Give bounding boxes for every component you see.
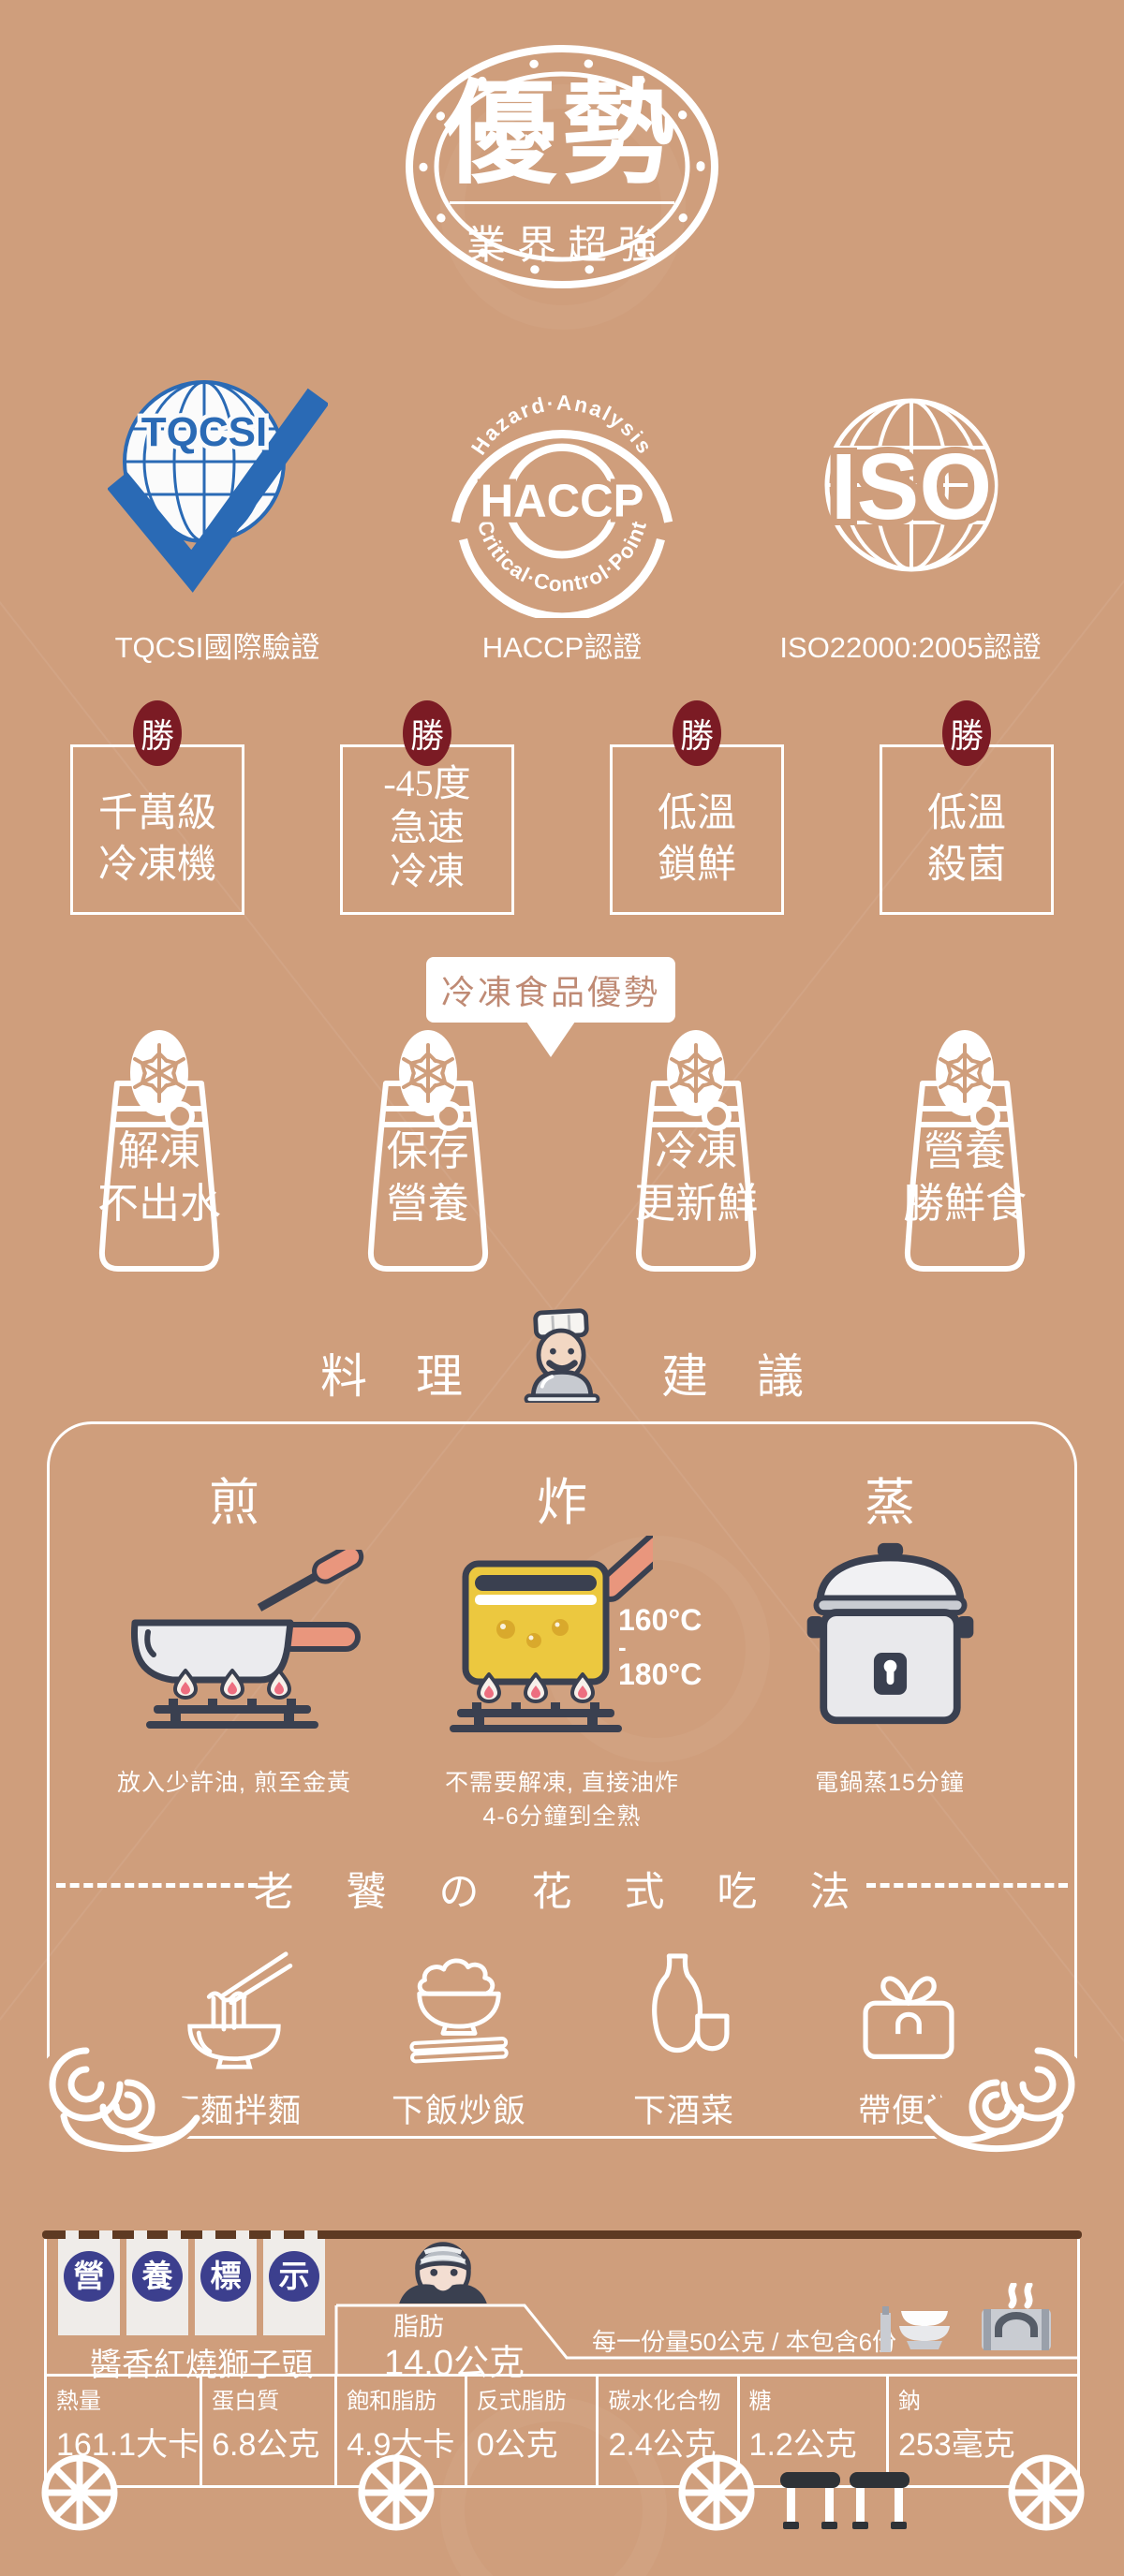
tqcsi-label: TQCSI國際驗證 [77,624,358,666]
temp-dash: - [618,1638,721,1657]
sake-set-icon [614,1950,754,2071]
cell-label: 反式脂肪 [477,2382,597,2415]
advantage-line: 低溫 [613,788,781,840]
stamp-title: 優勢 [405,79,719,191]
eat-ways-title: 老 饕 の 花 式 吃 法 [244,1860,880,1918]
advantage-box: 勝 低溫 殺菌 [880,744,1054,915]
advantage-line: 冷凍 [343,850,511,894]
bag-line: 冷凍 [607,1131,785,1172]
tag-char: 標 [200,2251,251,2302]
tqcsi-logo: TQCSI [108,373,328,611]
haccp-text: HACCP [481,476,644,526]
tableware-icon [871,2283,1072,2356]
nutrition-cell: 糖 1.2公克 [737,2377,886,2485]
freezer-bag: 保存 營養 [339,1030,517,1278]
rice-cooker-icon [785,1538,996,1730]
iso-logo: ISO [799,380,1024,610]
nutrition-tag: 示 [263,2239,325,2335]
cooking-title-char: 建 [661,1329,708,1424]
cell-label: 飽和脂肪 [347,2382,465,2415]
nutrition-cell: 蛋白質 6.8公克 [200,2377,334,2485]
advantage-boxes: 勝 千萬級 冷凍機 勝 -45度 急速 冷凍 勝 低溫 鎖鮮 勝 低溫 [70,700,1054,915]
wheel-icon [1006,2452,1087,2533]
advantage-line: 急速 [343,806,511,850]
serving-info: 每一份量50公克 / 本包含6份 [592,2323,896,2358]
advantage-line: 低溫 [882,788,1051,840]
tag-char: 示 [269,2251,319,2302]
cooking-title-char: 議 [757,1329,804,1424]
cooking-title-char: 料 [320,1329,367,1424]
freezer-bag: 營養 勝鮮食 [876,1030,1054,1278]
eat-way-label: 下酒菜 [633,2084,734,2132]
cell-value: 6.8公克 [212,2419,334,2465]
bag-line: 更新鮮 [607,1184,785,1225]
method-title-panfry: 煎 [140,1461,328,1535]
wheel-icon [39,2452,120,2533]
iso-label: ISO22000:2005認證 [751,624,1070,666]
cell-label: 糖 [749,2382,886,2415]
frozen-benefit-bubble: 冷凍食品優勢 [426,957,675,1023]
win-badge: 勝 [673,700,721,766]
chef-icon [511,1307,613,1403]
cell-label: 碳水化合物 [608,2382,736,2415]
cooking-title: 料 理 建 議 [0,1329,1124,1424]
tag-char: 營 [64,2251,114,2302]
advantage-line: 冷凍機 [73,840,242,891]
method-caption: 4-6分鐘到全熟 [403,1798,721,1832]
method-caption: 不需要解凍, 直接油炸 [403,1764,721,1798]
cell-label: 蛋白質 [212,2382,334,2415]
temp-low: 180°C [618,1657,721,1692]
eat-ways: 下麵拌麵 下飯炒飯 下酒菜 [155,1950,988,2132]
nutrition-tag: 標 [195,2239,257,2335]
method-caption: 電鍋蒸15分鐘 [749,1764,1030,1798]
bag-line: 勝鮮食 [876,1184,1054,1225]
nutrition-table: 熱量 161.1大卡 蛋白質 6.8公克 飽和脂肪 4.9大卡 反式脂肪 0公克… [47,2377,1077,2485]
iso-text: ISO [831,434,992,539]
wheel-icon [356,2452,436,2533]
divider-dashes-left [56,1883,258,1888]
method-caption: 放入少許油, 煎至金黃 [94,1764,375,1798]
bag-line: 保存 [339,1131,517,1172]
nutrition-tag: 營 [58,2239,120,2335]
fry-temperature: 160°C - 180°C [618,1603,721,1691]
advantage-line: 鎖鮮 [613,840,781,891]
eat-way: 下飯炒飯 [379,1950,539,2132]
cell-label: 鈉 [898,2382,1077,2415]
cell-value: 0公克 [477,2419,597,2465]
stamp-subtitle: 業界超強 [405,213,719,271]
stool [850,2472,910,2530]
bag-line: 解凍 [70,1131,248,1172]
tqcsi-text: TQCSI [141,409,267,455]
bag-line: 營養 [339,1184,517,1225]
nutrition-cell: 反式脂肪 0公克 [465,2377,597,2485]
eat-way-label: 下飯炒飯 [392,2084,526,2132]
eat-way: 下酒菜 [604,1950,763,2132]
cell-label: 熱量 [56,2382,200,2415]
win-badge: 勝 [942,700,991,766]
temp-high: 160°C [618,1603,721,1638]
wheel-icon [676,2452,757,2533]
cart-roof-bar [42,2230,1082,2239]
stool [780,2472,840,2530]
frozen-bags: 解凍 不出水 保存 營養 冷凍 更新鮮 營養 勝鮮食 [70,1030,1054,1278]
advantage-line: 殺菌 [882,840,1051,891]
bag-line: 營養 [876,1131,1054,1172]
haccp-badge: Hazard·Analysis Critical·Control·Point H… [442,378,682,618]
cloud-icon [28,2013,211,2172]
cells-bottom-border [44,2485,1080,2488]
haccp-label: HACCP認證 [421,624,702,666]
cell-value: 1.2公克 [749,2419,886,2465]
advantage-line: -45度 [343,762,511,806]
win-badge: 勝 [403,700,451,766]
freezer-bag: 冷凍 更新鮮 [607,1030,785,1278]
freezer-bag: 解凍 不出水 [70,1030,248,1278]
advantage-box: 勝 -45度 急速 冷凍 [340,744,514,915]
advantage-stamp: 優勢 業界超強 [405,45,719,290]
tag-char: 養 [132,2251,183,2302]
nutrition-tag: 養 [126,2239,188,2335]
advantage-box: 勝 千萬級 冷凍機 [70,744,244,915]
nutrition-tags: 營 養 標 示 [58,2239,325,2335]
page: 優勢 業界超強 TQCSI Hazard·Analysis Critical·C… [0,0,1124,2576]
chef-avatar [397,2230,489,2304]
method-title-deepfry: 炸 [468,1461,656,1535]
advantage-box: 勝 低溫 鎖鮮 [610,744,784,915]
divider-dashes-right [866,1883,1068,1888]
bag-line: 不出水 [70,1184,248,1225]
rice-bowl-icon [384,1950,534,2071]
advantage-line: 千萬級 [73,788,242,840]
cloud-icon [913,2013,1096,2172]
frying-pan-icon [105,1550,372,1730]
method-title-steam: 蒸 [796,1461,983,1535]
cooking-title-char: 理 [416,1329,463,1424]
win-badge: 勝 [133,700,182,766]
stamp-divider [450,201,674,204]
